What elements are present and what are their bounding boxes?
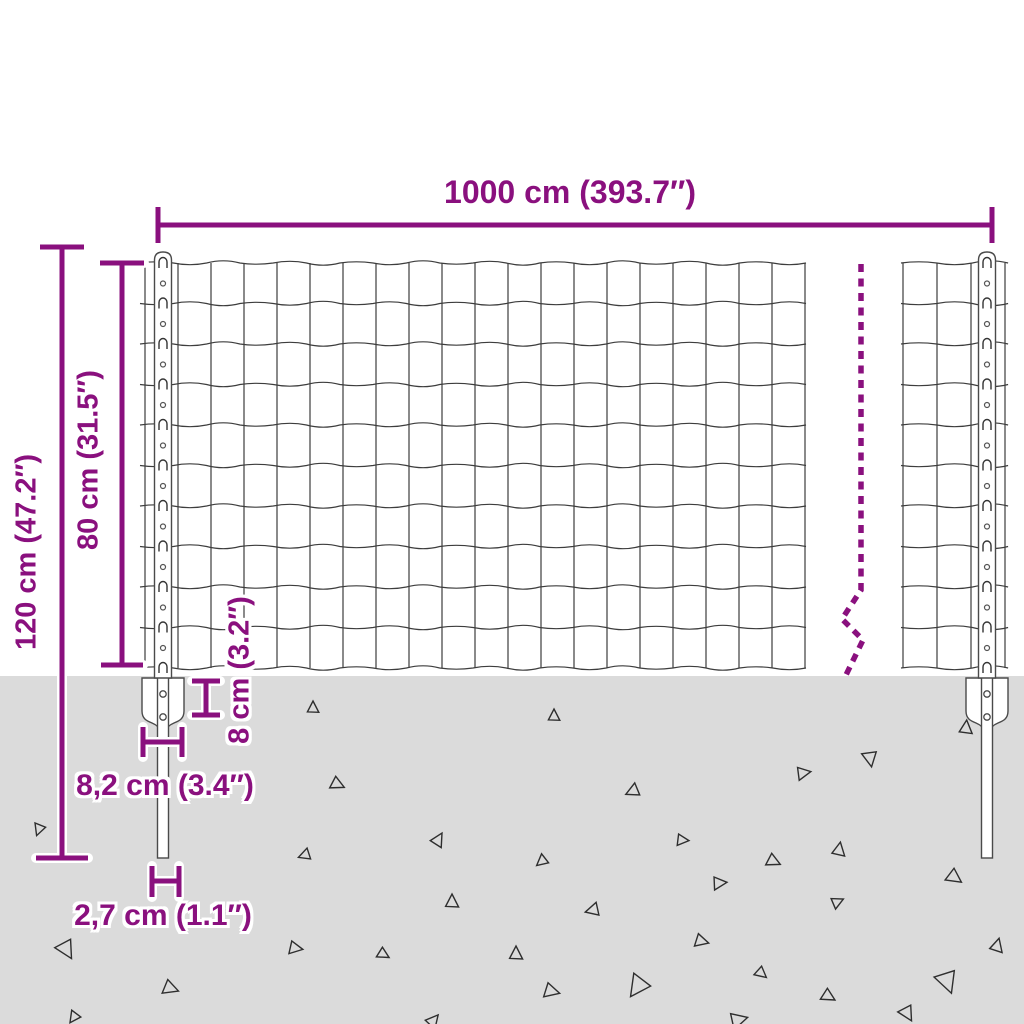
dim-spike-width-label: 2,7 cm (1.1″) xyxy=(74,901,252,931)
dim-plate-depth-label: 8 cm (3.2″) xyxy=(226,596,255,744)
dim-plate-width-label: 8,2 cm (3.4″) xyxy=(76,771,254,801)
break-line xyxy=(842,264,863,677)
dim-total-width-label: 1000 cm (393.7″) xyxy=(444,176,696,208)
fence-dimension-diagram: 1000 cm (393.7″) 120 cm (47.2″) 80 cm (3… xyxy=(0,0,1024,1024)
dim-mesh-height-label: 80 cm (31.5″) xyxy=(75,370,104,550)
dim-total-height-label: 120 cm (47.2″) xyxy=(13,454,42,650)
fence-diagram-svg xyxy=(0,0,1024,1024)
